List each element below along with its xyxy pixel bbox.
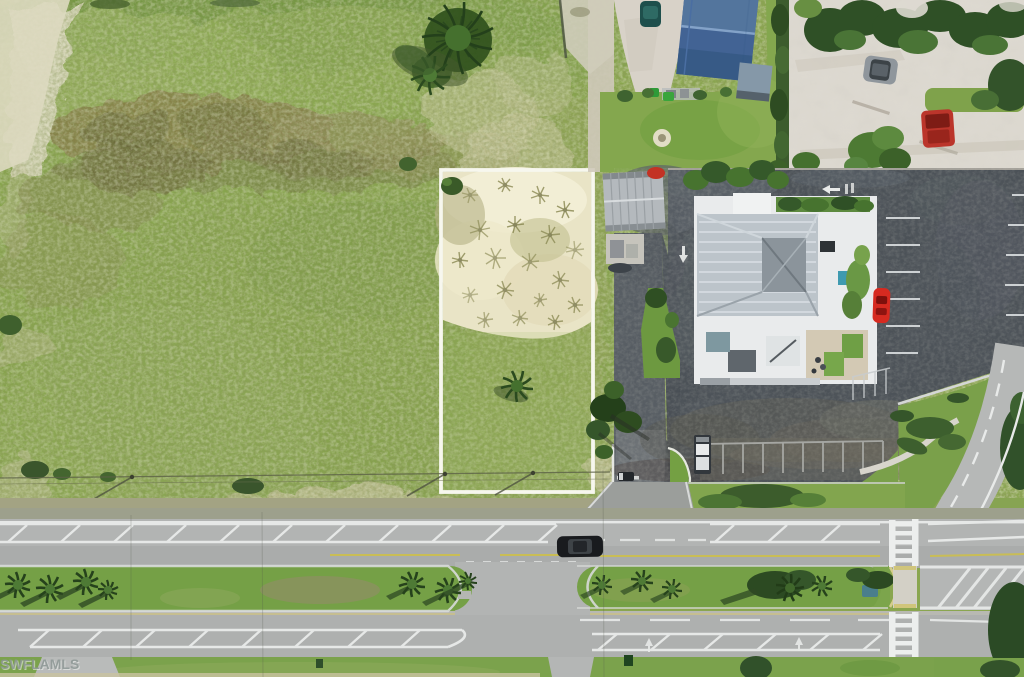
svg-text:SWFLAMLS: SWFLAMLS (0, 656, 79, 672)
